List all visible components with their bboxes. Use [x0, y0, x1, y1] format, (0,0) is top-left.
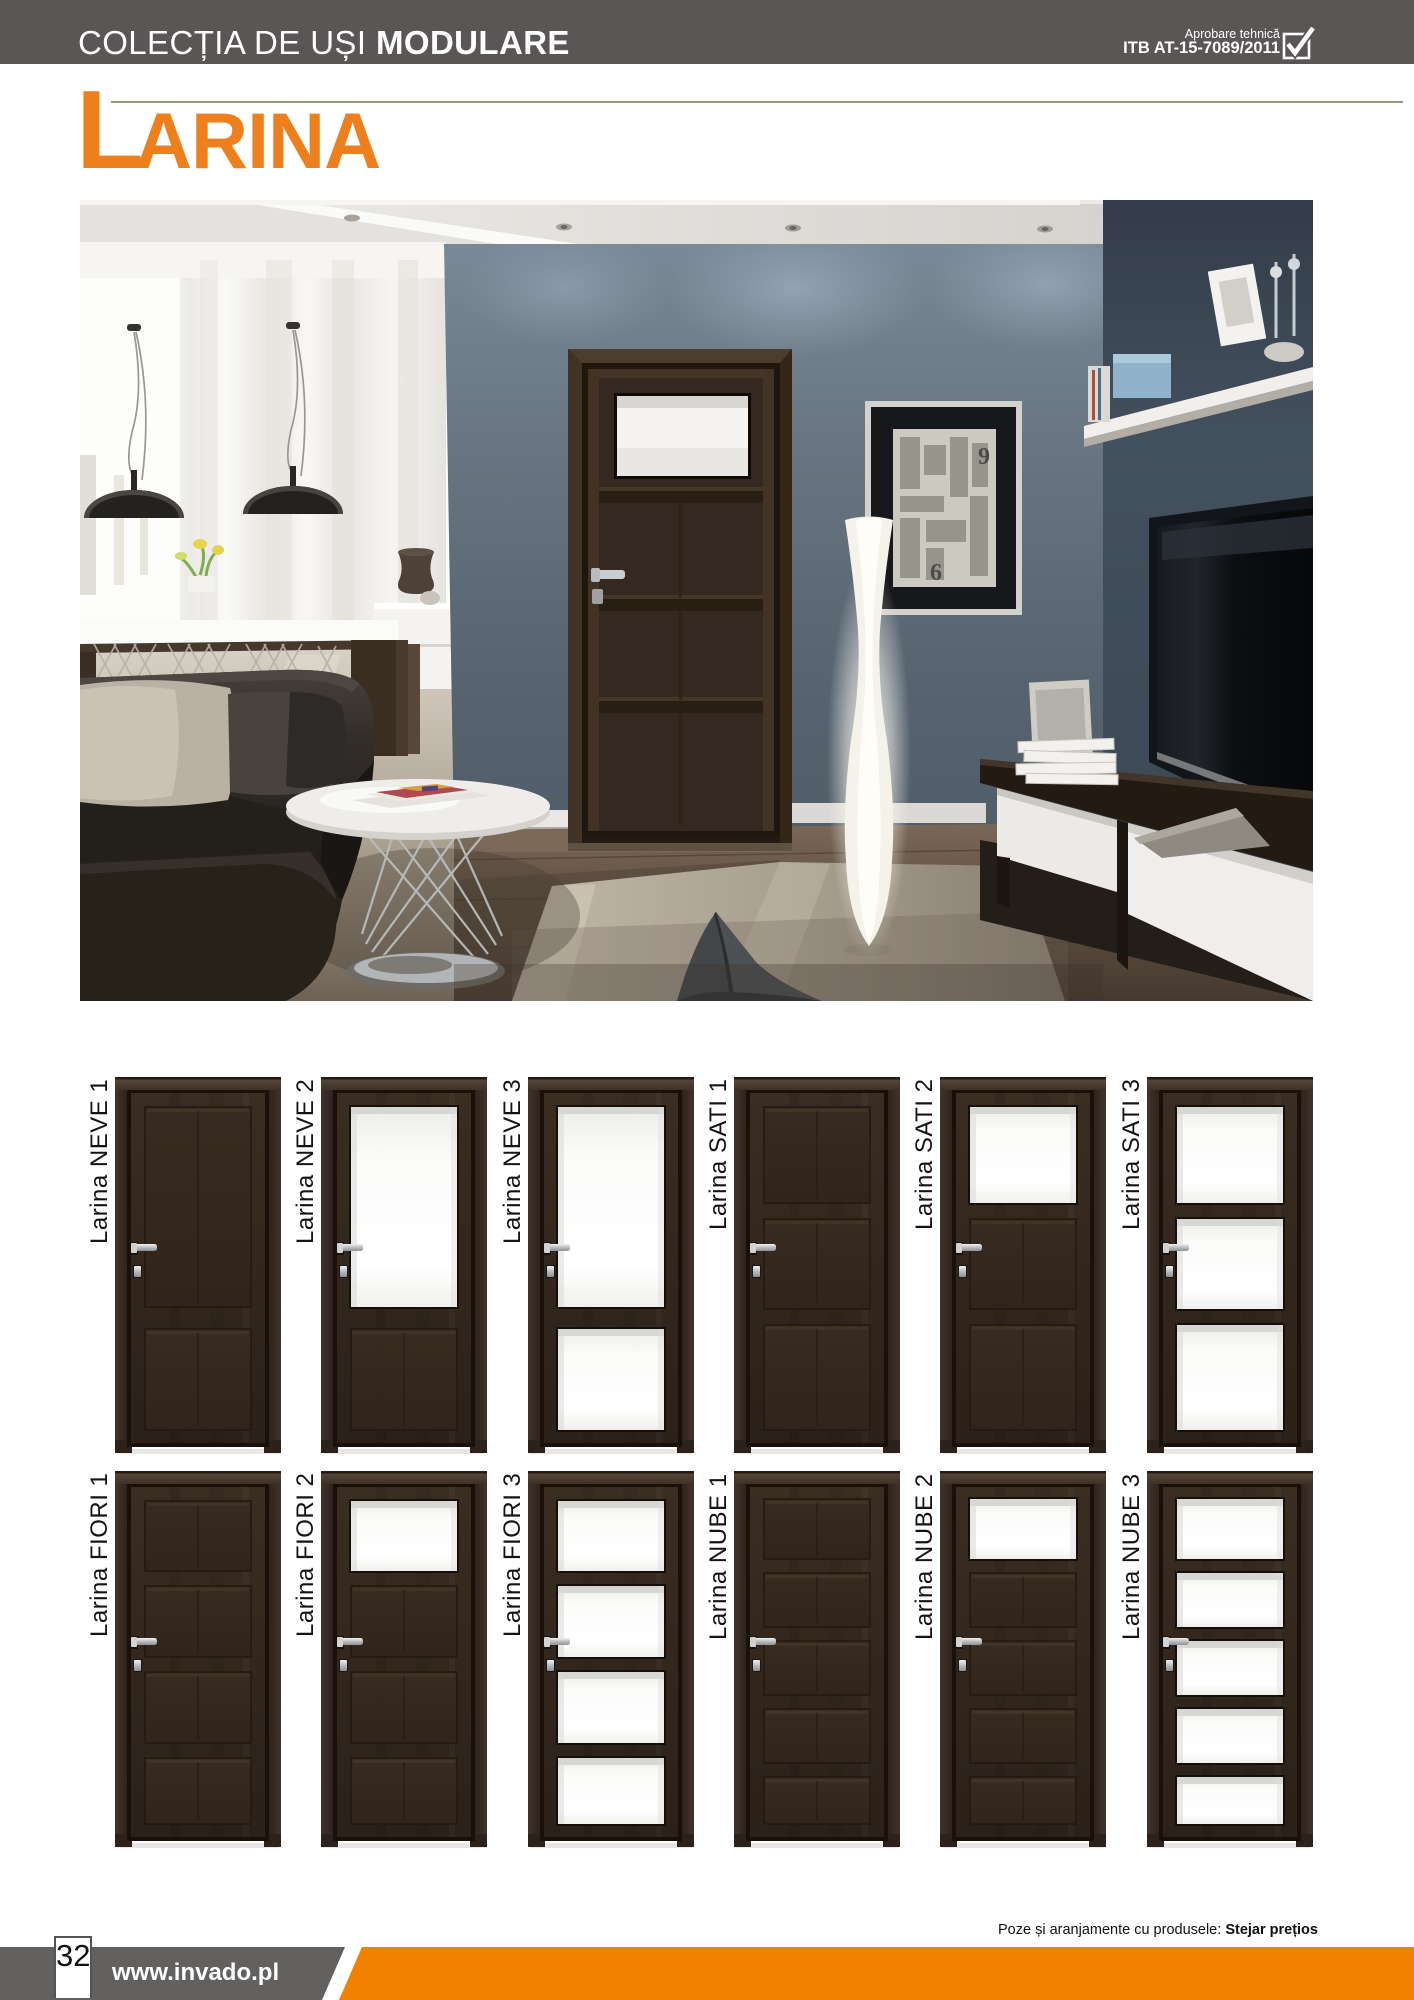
svg-text:L: L	[76, 80, 144, 192]
svg-text:9: 9	[978, 444, 990, 470]
svg-text:6: 6	[930, 560, 942, 586]
svg-text:ARINA: ARINA	[135, 96, 380, 185]
